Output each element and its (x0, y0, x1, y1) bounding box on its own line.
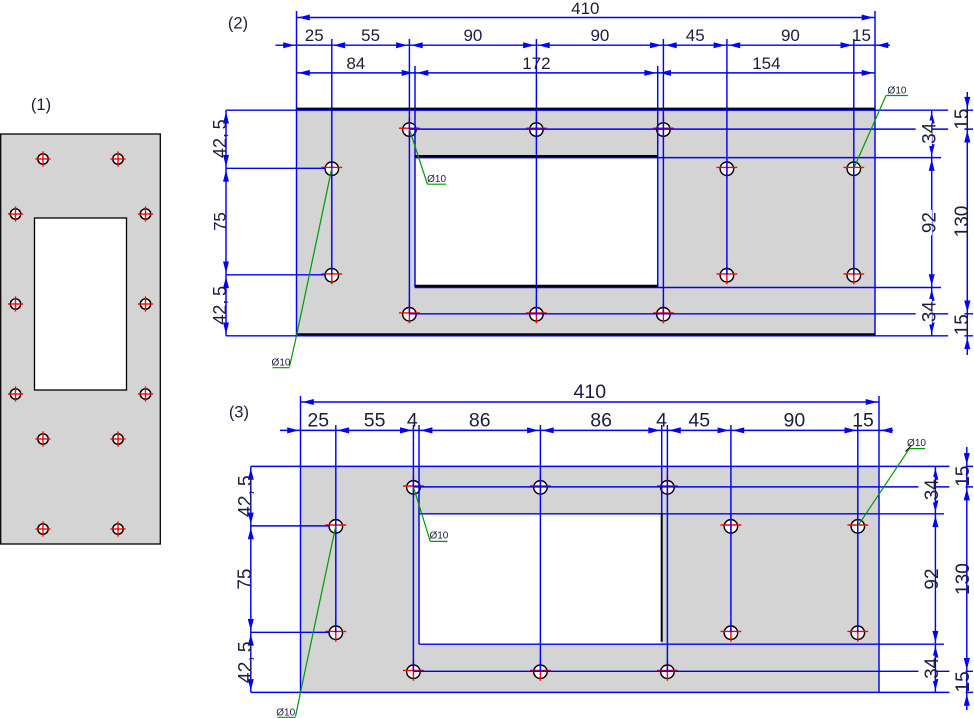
svg-text:34: 34 (919, 301, 940, 323)
svg-text:(1): (1) (31, 96, 51, 114)
svg-text:Ø10: Ø10 (427, 174, 446, 185)
svg-text:15: 15 (953, 466, 974, 487)
svg-text:90: 90 (784, 409, 806, 431)
svg-text:75: 75 (235, 569, 256, 590)
svg-text:34: 34 (922, 657, 943, 679)
svg-text:4: 4 (407, 409, 418, 431)
svg-text:(3): (3) (229, 404, 249, 422)
svg-text:410: 410 (574, 381, 607, 403)
svg-text:25: 25 (307, 409, 329, 431)
svg-text:4: 4 (656, 409, 667, 431)
svg-text:Ø10: Ø10 (429, 531, 448, 542)
svg-text:Ø10: Ø10 (907, 438, 926, 449)
svg-text:34: 34 (922, 479, 943, 501)
svg-text:90: 90 (590, 26, 609, 45)
svg-text:(2): (2) (228, 15, 248, 33)
svg-text:90: 90 (463, 26, 482, 45)
svg-text:84: 84 (346, 54, 365, 73)
svg-text:15: 15 (952, 314, 973, 335)
svg-text:Ø10: Ø10 (276, 708, 295, 718)
svg-text:34: 34 (919, 122, 940, 144)
svg-text:172: 172 (522, 54, 550, 73)
svg-text:130: 130 (952, 206, 973, 238)
svg-text:75: 75 (210, 212, 229, 231)
svg-text:42, 5: 42, 5 (234, 641, 256, 683)
svg-text:154: 154 (752, 54, 780, 73)
svg-text:Ø10: Ø10 (888, 85, 907, 96)
svg-text:55: 55 (364, 409, 386, 431)
svg-text:45: 45 (688, 409, 710, 431)
svg-text:45: 45 (686, 26, 705, 45)
svg-text:42, 5: 42, 5 (234, 475, 256, 517)
svg-text:15: 15 (953, 671, 974, 692)
svg-text:86: 86 (590, 409, 612, 431)
svg-text:92: 92 (922, 568, 943, 589)
svg-text:25: 25 (305, 26, 324, 45)
svg-text:130: 130 (953, 563, 974, 595)
svg-text:42, 5: 42, 5 (210, 119, 230, 158)
svg-text:90: 90 (781, 26, 800, 45)
svg-text:15: 15 (852, 26, 871, 45)
svg-text:15: 15 (952, 109, 973, 130)
svg-text:42, 5: 42, 5 (210, 286, 230, 325)
svg-text:92: 92 (919, 212, 940, 233)
svg-text:Ø10: Ø10 (272, 357, 291, 368)
svg-text:15: 15 (852, 409, 874, 431)
svg-text:55: 55 (361, 26, 380, 45)
svg-text:410: 410 (571, 0, 599, 18)
svg-text:86: 86 (469, 409, 491, 431)
